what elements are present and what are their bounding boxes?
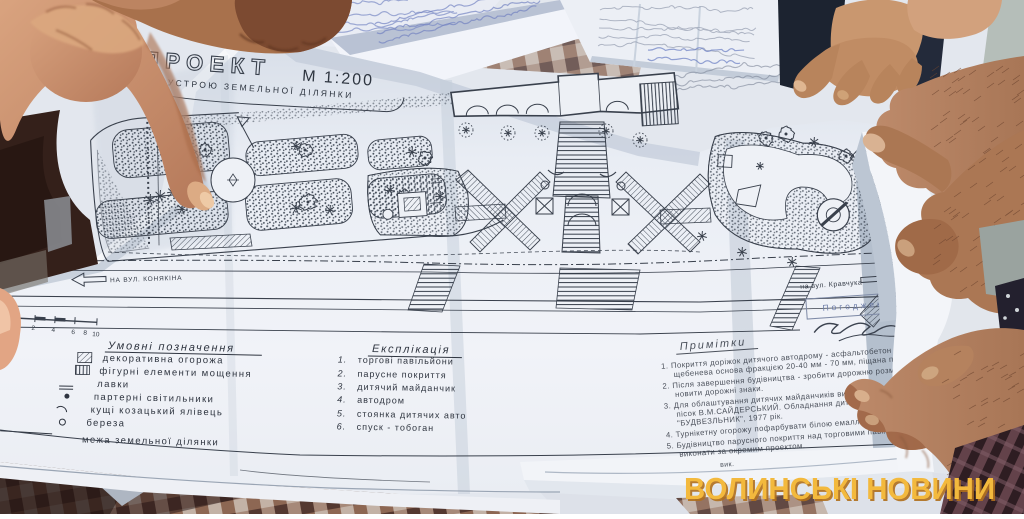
svg-text:ВОЛИНСЬКІ НОВИНИ: ВОЛИНСЬКІ НОВИНИ (684, 471, 995, 506)
svg-text:6.: 6. (337, 421, 347, 431)
svg-text:дитячий майданчик: дитячий майданчик (357, 382, 456, 394)
svg-text:автодром: автодром (357, 395, 405, 406)
svg-text:4.: 4. (337, 394, 347, 404)
svg-text:лавки: лавки (97, 379, 130, 391)
svg-text:береза: береза (86, 418, 125, 430)
svg-text:2.: 2. (336, 368, 347, 378)
svg-text:торгові павільйони: торгові павільйони (358, 355, 454, 367)
svg-text:вик.: вик. (720, 461, 735, 469)
svg-text:1.: 1. (338, 354, 348, 364)
svg-text:10: 10 (92, 331, 100, 338)
svg-text:стоянка дитячих авто: стоянка дитячих авто (357, 409, 467, 421)
svg-text:парусне покриття: парусне покриття (357, 369, 446, 381)
svg-text:спуск - тобоган: спуск - тобоган (357, 422, 435, 433)
svg-text:5.: 5. (337, 408, 347, 418)
svg-text:3.: 3. (337, 381, 347, 391)
